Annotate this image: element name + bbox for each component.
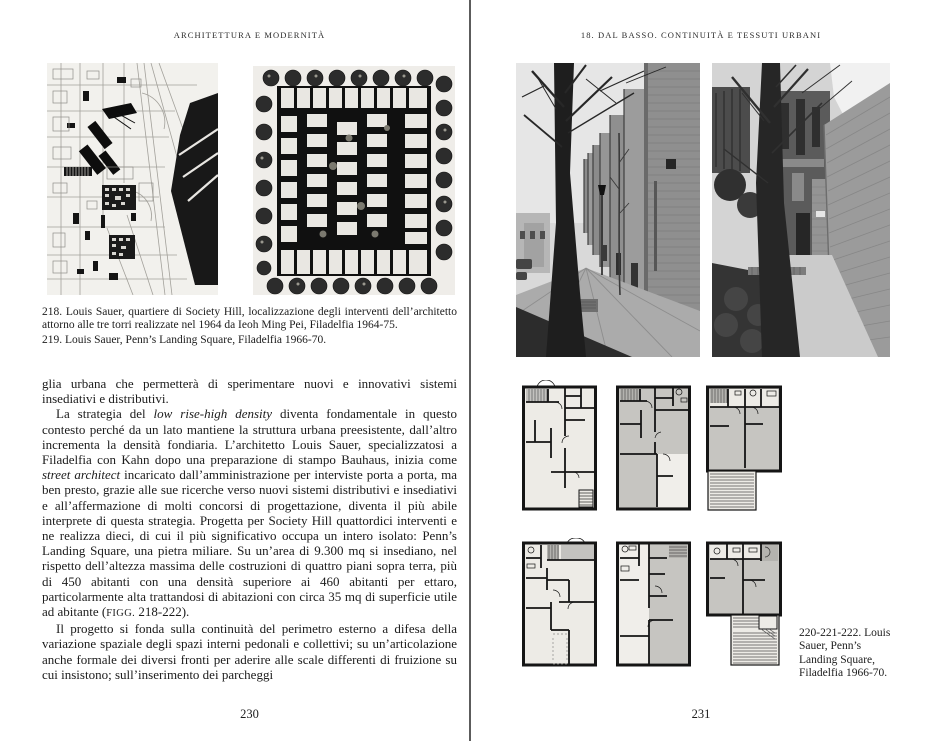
- caption-220-222: 220-221-222. Louis Sauer, Penn’s Landing…: [799, 627, 896, 681]
- body-text-block: glia urbana che permetterà di sperimenta…: [42, 376, 457, 682]
- fig-222-plan-3: [705, 380, 784, 513]
- left-captions-block: 218. Louis Sauer, quartiere di Society H…: [42, 306, 457, 347]
- body-paragraph-2: La strategia del low rise-high density d…: [42, 406, 457, 621]
- right-running-head: 18. DAL BASSO. CONTINUITÀ E TESSUTI URBA…: [512, 30, 890, 40]
- fig-222-plan-2: [615, 380, 692, 513]
- fig-222-plan-4: [521, 538, 598, 669]
- fig-222-plan-1: [521, 380, 598, 513]
- center-divider-rule: [469, 0, 471, 741]
- left-running-head: ARCHITETTURA E MODERNITÀ: [42, 30, 457, 40]
- left-page-number: 230: [42, 707, 457, 722]
- fig-222-plan-5: [615, 538, 692, 669]
- fig-221-walkway-photo: [712, 63, 890, 357]
- fig-219-penns-landing-site-plan: [253, 66, 455, 295]
- fig-222-plan-6: [705, 538, 784, 669]
- fig-220-street-photo: [516, 63, 700, 357]
- caption-219: 219. Louis Sauer, Penn’s Landing Square,…: [42, 334, 457, 347]
- body-paragraph-3: Il progetto si fonda sulla continuità de…: [42, 621, 457, 682]
- book-spread: ARCHITETTURA E MODERNITÀ: [0, 0, 939, 743]
- body-paragraph-1: glia urbana che permetterà di sperimenta…: [42, 376, 457, 406]
- right-page-number: 231: [512, 707, 890, 722]
- fig-218-society-hill-map: [47, 63, 218, 295]
- caption-218: 218. Louis Sauer, quartiere di Society H…: [42, 306, 457, 333]
